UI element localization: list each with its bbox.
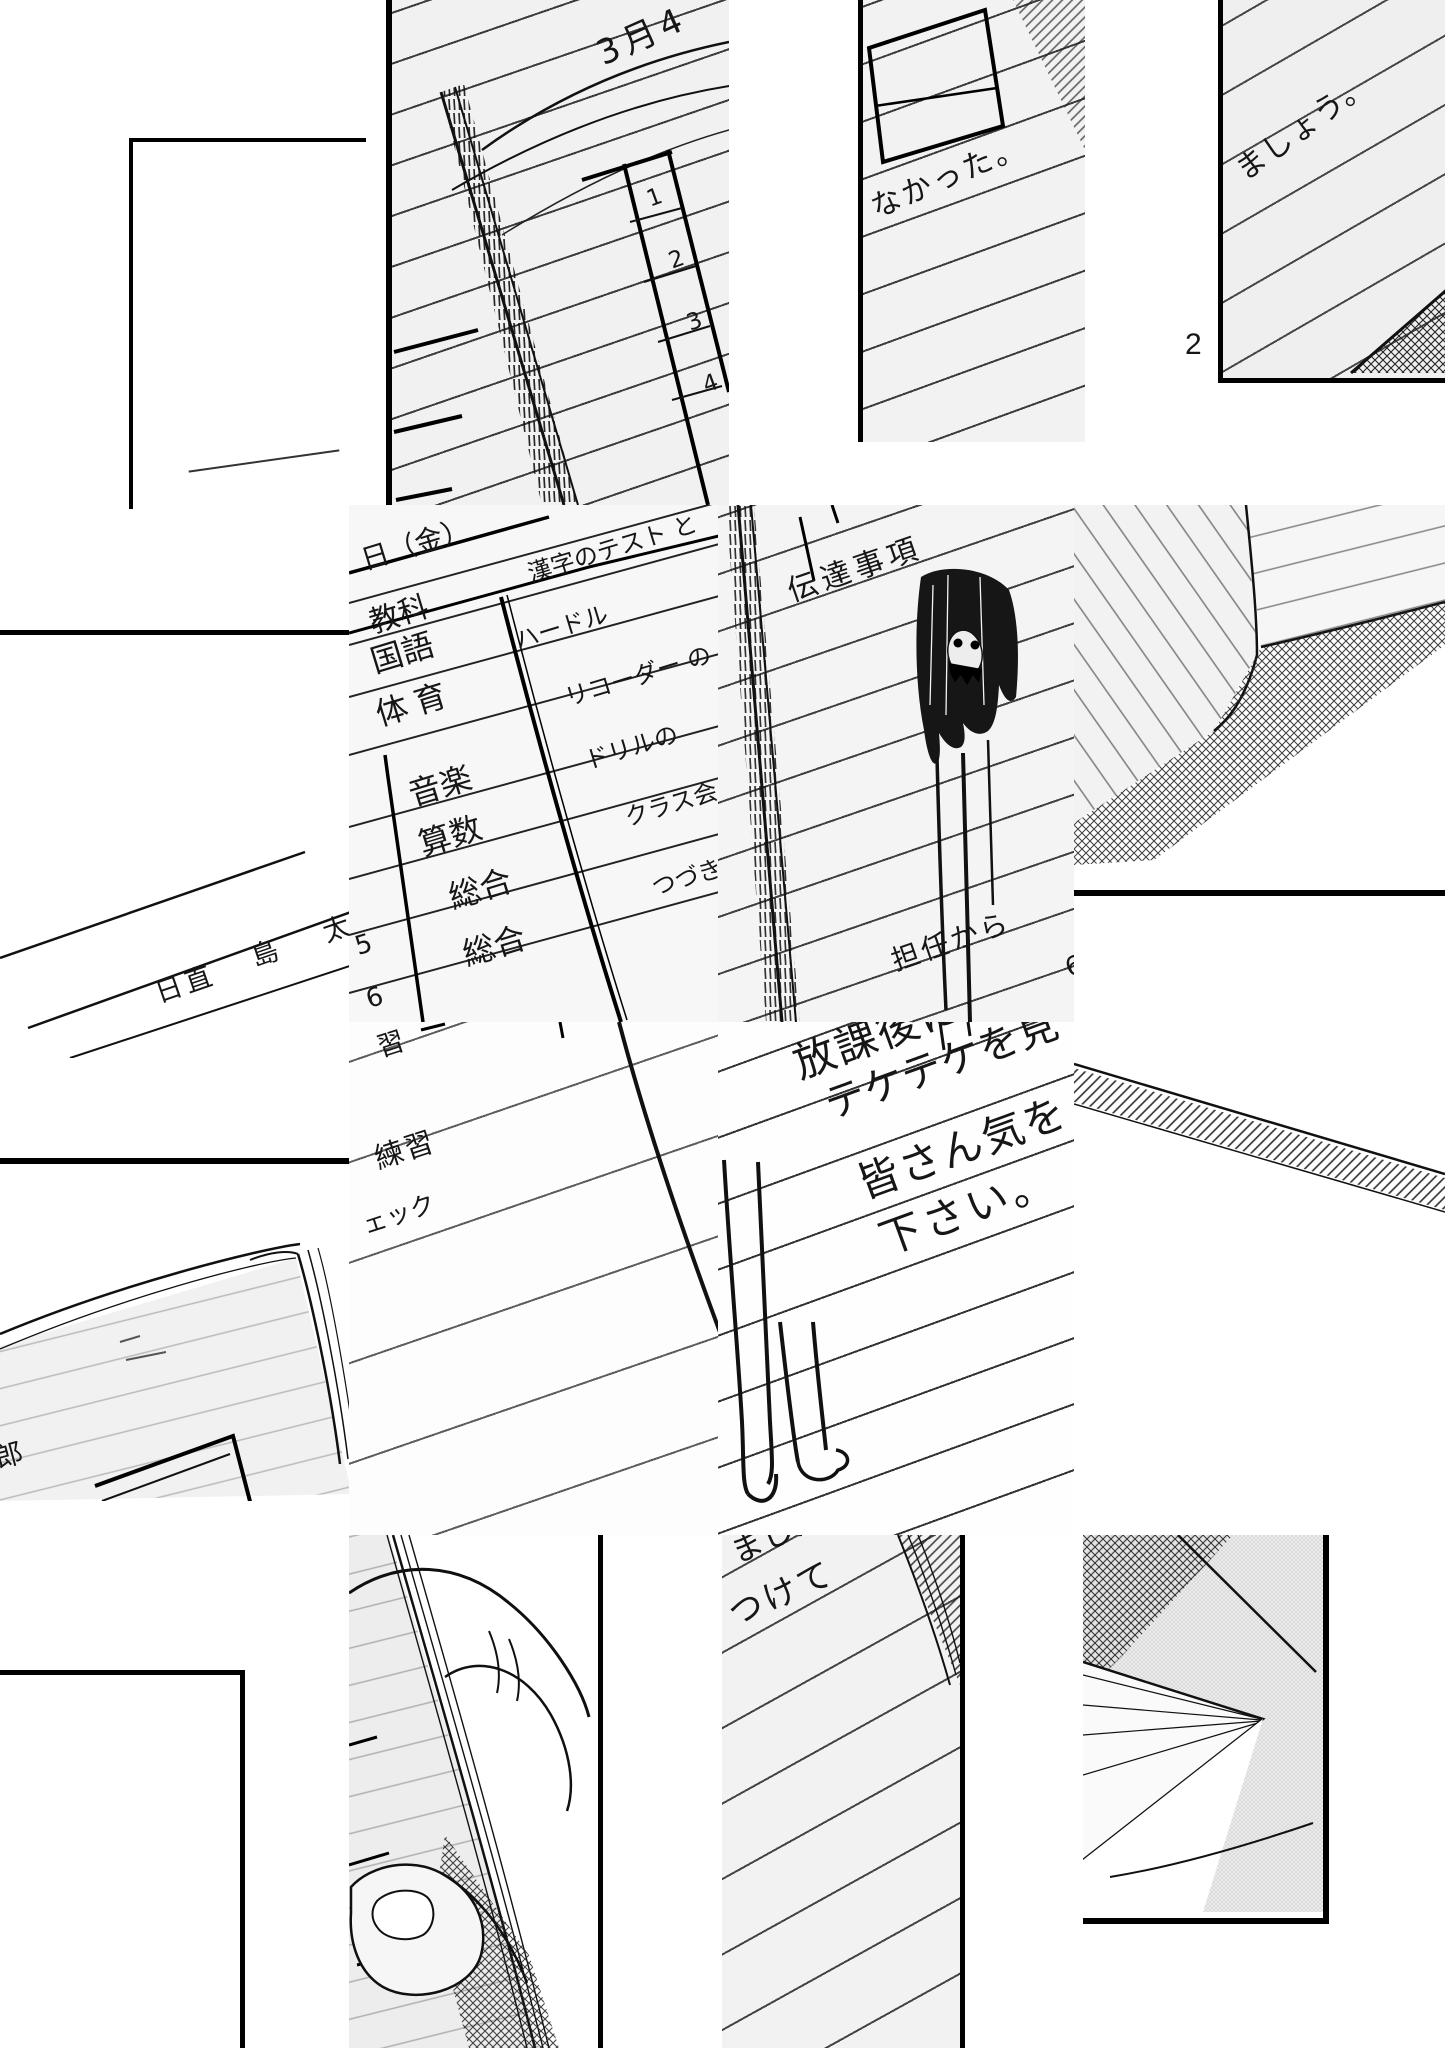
panel-schedule-table: 日（金） 教科 国語 体育 音楽 算数 総合 総合 漢字のテスト と ハードル …: [349, 505, 723, 1022]
corner-shading-drawing: [1223, 0, 1445, 378]
page-number: 2: [1185, 330, 1202, 360]
desk-edge-line: [189, 449, 340, 472]
panel-border-mid-left: [0, 630, 350, 635]
panel-desk-edge: [1074, 1022, 1445, 1244]
practice-tile-lines: [349, 1022, 723, 1535]
panel-top-left-corner: [129, 138, 366, 509]
panel-border-bottomleft-right: [240, 1670, 245, 2048]
manga-page: 3月4 1 2 3 4 なかった。 ましょう。 2 日直 島 太: [0, 0, 1445, 2048]
table-outline-drawing: [863, 0, 1085, 442]
hand-drawing: [349, 1535, 598, 2048]
panel-notebook-date: 3月4 1 2 3 4: [386, 0, 729, 505]
notebook-top-corner-drawing: [0, 1164, 362, 1501]
corner-on-desk-drawing: [1083, 1535, 1323, 1912]
panel-duty-line: 日直 島 太: [0, 840, 362, 1058]
panel-practice: 習 練習 ェック: [349, 1022, 723, 1535]
panel-notebook-corner-right: [1074, 505, 1445, 896]
panel-notice: 伝達事項 担任から 6: [718, 505, 1074, 1022]
panel-hand: [349, 1535, 603, 2048]
panel-fragment-mashou: ましょう。: [1218, 0, 1445, 383]
panel-fragment-mashita: ました。 つけて: [722, 1535, 965, 2048]
desk-edge-drawing: [1074, 1022, 1445, 1244]
panel-corner-on-desk: [1083, 1535, 1329, 1924]
panel-teacher-message: 放課後に テケテケを見 皆さん気を 下さい。: [718, 1022, 1074, 1535]
panel-fragment-nakatta: なかった。: [858, 0, 1085, 442]
notebook-corner-drawing: [1074, 505, 1445, 884]
panel-border-bottomleft-top: [0, 1670, 243, 1675]
panel-notebook-corner-left: 郎: [0, 1164, 362, 1501]
